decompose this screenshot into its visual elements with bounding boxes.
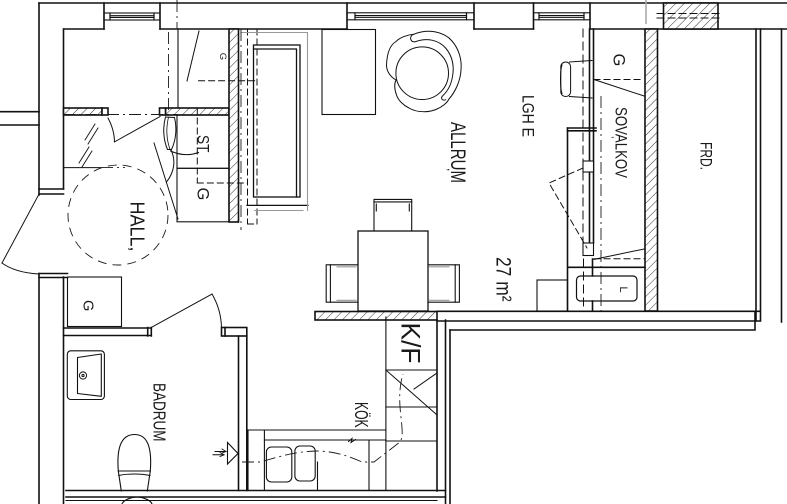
- svg-text:27 m²: 27 m²: [492, 257, 515, 302]
- svg-text:ALLRUM: ALLRUM: [446, 122, 469, 183]
- svg-text:,: ,: [610, 136, 621, 139]
- svg-text:KÖK: KÖK: [351, 402, 371, 428]
- svg-text:G: G: [80, 300, 96, 311]
- svg-text:L: L: [617, 287, 629, 293]
- svg-text:ST: ST: [194, 135, 212, 152]
- svg-text:K/F: K/F: [396, 323, 426, 364]
- svg-text:SOVALKOV: SOVALKOV: [612, 107, 631, 179]
- svg-text:FRD.: FRD.: [697, 142, 715, 170]
- svg-text:G: G: [217, 53, 228, 60]
- svg-text:G: G: [194, 188, 212, 201]
- svg-text:G: G: [610, 54, 628, 67]
- svg-text:BADRUM: BADRUM: [150, 383, 170, 442]
- svg-text:LGH E: LGH E: [519, 95, 538, 137]
- svg-text:HALL,: HALL,: [125, 202, 148, 252]
- svg-text:,: ,: [445, 168, 459, 171]
